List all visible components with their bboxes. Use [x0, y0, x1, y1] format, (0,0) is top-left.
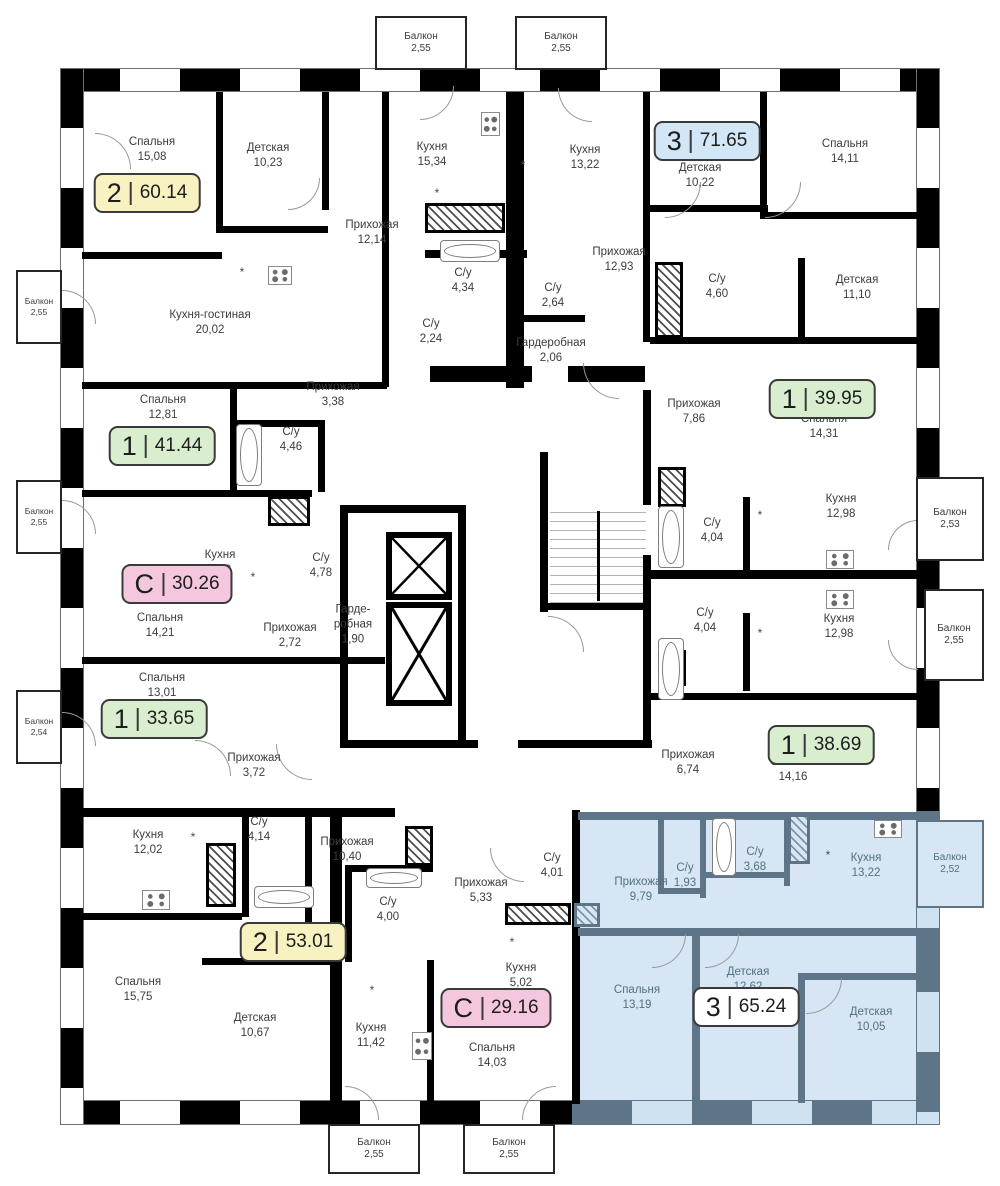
room-name: Кухня: [824, 613, 855, 625]
badge-separator: [276, 931, 278, 954]
room-label: С/у1,93: [674, 861, 696, 891]
balcony-area: 2,55: [499, 1149, 518, 1162]
room-area: 4,34: [452, 281, 474, 296]
wall-segment: [430, 366, 532, 382]
room-area: 4,04: [701, 531, 723, 546]
hatch-shaft: [574, 903, 600, 927]
appliance-asterisk-mark: *: [191, 830, 196, 844]
wall-segment: [743, 613, 750, 691]
room-name: С/у: [746, 846, 763, 858]
room-area: 4,14: [248, 830, 270, 845]
appliance-asterisk-mark: *: [251, 570, 256, 584]
room-name: Спальня: [822, 138, 868, 150]
room-name: Детская: [850, 1006, 893, 1018]
room-label: Спальня14,03: [469, 1041, 515, 1071]
bathtub-icon: [658, 506, 684, 568]
badge-room-count: 2: [107, 178, 122, 209]
badge-separator: [804, 734, 806, 757]
wall-segment: [510, 315, 585, 322]
room-label: С/у4,34: [452, 266, 474, 296]
room-label: Детская11,10: [836, 273, 879, 303]
apartment-badge[interactable]: 133.65: [101, 699, 208, 739]
apartment-badge[interactable]: С30.26: [121, 564, 232, 604]
room-area: 5,33: [454, 891, 507, 906]
balcony-label: Балкон: [492, 1137, 526, 1150]
badge-separator: [162, 573, 164, 596]
door-arc-icon: [195, 740, 231, 776]
room-label: С/у2,64: [542, 281, 564, 311]
badge-separator: [137, 708, 139, 731]
room-name: Спальня: [139, 672, 185, 684]
room-label: Кухня12,02: [133, 828, 164, 858]
stairs: [550, 455, 646, 605]
room-area: 14,11: [822, 152, 868, 167]
room-area: 12,93: [592, 260, 645, 275]
room-area: 10,22: [679, 176, 722, 191]
badge-area: 60.14: [140, 182, 188, 204]
badge-area: 53.01: [286, 931, 334, 953]
room-name: Прихожая: [661, 749, 714, 761]
wall-segment: [318, 420, 325, 492]
wall-segment: [82, 252, 222, 259]
wall-segment: [518, 740, 652, 748]
room-name: Прихожая: [667, 398, 720, 410]
door-arc-icon: [888, 520, 918, 550]
apartment-badge[interactable]: 371.65: [654, 121, 761, 161]
wall-segment: [798, 258, 805, 342]
room-area: 4,60: [706, 287, 728, 302]
hatch-shaft: [655, 262, 683, 338]
room-name: Детская: [247, 142, 290, 154]
door-arc-icon: [345, 1086, 379, 1120]
selected-wall-segment: [578, 928, 940, 936]
room-label: С/у4,60: [706, 272, 728, 302]
badge-separator: [729, 996, 731, 1019]
room-label: Кухня12,98: [826, 492, 857, 522]
balcony: Балкон2,55: [375, 16, 467, 70]
room-area: 11,10: [836, 288, 879, 303]
stove-icon: [874, 820, 902, 838]
room-label: С/у2,24: [420, 317, 442, 347]
stove-icon: [268, 266, 292, 285]
hatch-shaft: [405, 826, 433, 866]
room-name: Прихожая: [345, 219, 398, 231]
badge-area: 41.44: [155, 435, 203, 457]
room-label: Спальня12,81: [140, 393, 186, 423]
appliance-asterisk-mark: *: [521, 158, 526, 172]
balcony-area: 2,55: [364, 1149, 383, 1162]
room-area: 11,42: [356, 1036, 387, 1051]
room-area: 2,72: [263, 636, 316, 651]
room-name: Спальня: [129, 136, 175, 148]
room-label: Кухня15,34: [417, 140, 448, 170]
stove-icon: [412, 1032, 432, 1060]
room-name: Кухня: [417, 141, 448, 153]
stove-icon: [826, 550, 854, 569]
room-label: Детская10,67: [234, 1011, 277, 1041]
room-label: Кухня5,02: [506, 961, 537, 991]
wall-segment: [643, 205, 768, 212]
appliance-asterisk-mark: *: [370, 983, 375, 997]
room-label: Спальня13,01: [139, 671, 185, 701]
room-name: Спальня: [140, 394, 186, 406]
room-area: 13,19: [614, 998, 660, 1013]
balcony: Балкон2,55: [463, 1124, 555, 1174]
balcony: Балкон2,55: [515, 16, 607, 70]
wall-segment: [340, 505, 466, 513]
room-area: 12,98: [824, 627, 855, 642]
balcony: Балкон2,52: [916, 820, 984, 908]
badge-room-count: 1: [782, 384, 797, 415]
room-name: Прихожая: [320, 836, 373, 848]
room-name: С/у: [544, 282, 561, 294]
room-name: Прихожая: [263, 622, 316, 634]
room-label: Спальня14,11: [822, 137, 868, 167]
room-label: С/у4,04: [701, 516, 723, 546]
badge-area: 29.16: [491, 997, 539, 1019]
hatch-shaft: [505, 903, 571, 925]
room-area: 10,67: [234, 1026, 277, 1041]
door-arc-icon: [288, 178, 320, 210]
badge-room-count: С: [453, 993, 473, 1024]
apartment-badge[interactable]: 260.14: [94, 173, 201, 213]
room-name: Спальня: [137, 612, 183, 624]
room-area: 9,79: [614, 890, 667, 905]
badge-area: 30.26: [172, 573, 220, 595]
room-area: 7,86: [667, 412, 720, 427]
room-area: 15,75: [115, 990, 161, 1005]
badge-area: 33.65: [147, 708, 195, 730]
wall-segment: [82, 913, 242, 920]
room-area: 12,14: [345, 233, 398, 248]
balcony-label: Балкон: [25, 296, 54, 307]
door-arc-icon: [420, 86, 454, 120]
wall-segment: [643, 92, 650, 342]
room-area: 2,64: [542, 296, 564, 311]
wall-segment: [458, 510, 466, 747]
badge-separator: [130, 182, 132, 205]
room-area: 4,78: [310, 566, 332, 581]
room-area: 3,72: [227, 766, 280, 781]
apartment-badge[interactable]: С29.16: [440, 988, 551, 1028]
door-arc-icon: [62, 500, 96, 534]
selected-wall-segment: [700, 812, 706, 898]
bathtub-icon: [658, 638, 684, 700]
room-label: С/у3,68: [744, 845, 766, 875]
room-area: 4,01: [541, 866, 563, 881]
balcony-area: 2,55: [944, 635, 963, 648]
exterior-wall-bottom: [60, 1100, 580, 1125]
wall-segment: [643, 390, 651, 505]
badge-separator: [805, 388, 807, 411]
room-name: Гардеробная: [516, 337, 586, 349]
stove-icon: [142, 890, 170, 910]
wall-segment: [764, 212, 920, 219]
wall-segment: [82, 657, 385, 664]
wall-segment: [650, 570, 922, 579]
wall-segment: [540, 452, 548, 612]
wall-segment: [82, 808, 395, 817]
room-area: 1,90: [322, 632, 384, 647]
wall-segment: [216, 226, 328, 233]
room-name: Прихожая: [592, 246, 645, 258]
balcony-label: Балкон: [933, 852, 967, 865]
hatch-shaft: [206, 843, 236, 907]
room-label: Прихожая10,40: [320, 835, 373, 865]
exterior-wall-bottom-selected: [572, 1100, 940, 1125]
balcony-area: 2,55: [411, 43, 430, 56]
room-label: Прихожая3,72: [227, 751, 280, 781]
room-area: 14,16: [770, 770, 816, 785]
room-area: 20,02: [169, 323, 250, 338]
stove-icon: [826, 590, 854, 609]
bathtub-icon: [712, 818, 736, 876]
room-area: 10,40: [320, 850, 373, 865]
room-name: Прихожая: [227, 752, 280, 764]
room-name: Прихожая: [614, 876, 667, 888]
room-label: Кухня13,22: [570, 143, 601, 173]
room-name: Спальня: [115, 976, 161, 988]
room-name: Кухня: [133, 829, 164, 841]
wall-segment: [643, 555, 651, 740]
elevator-x-icon: [392, 538, 446, 594]
balcony: Балкон2,55: [924, 589, 984, 681]
appliance-asterisk-mark: *: [435, 186, 440, 200]
room-name: Кухня: [356, 1022, 387, 1034]
wall-segment: [216, 92, 223, 232]
room-name: Кухня: [851, 852, 882, 864]
room-area: 15,08: [129, 150, 175, 165]
badge-area: 38.69: [814, 734, 862, 756]
room-label: Прихожая12,14: [345, 218, 398, 248]
room-area: 10,23: [247, 156, 290, 171]
room-label: Прихожая5,33: [454, 876, 507, 906]
room-label: С/у4,01: [541, 851, 563, 881]
badge-separator: [481, 997, 483, 1020]
balcony-label: Балкон: [937, 623, 971, 636]
bathtub-icon: [236, 424, 262, 486]
balcony-area: 2,55: [31, 307, 48, 318]
wall-segment: [743, 497, 750, 575]
wall-segment: [650, 693, 922, 700]
balcony-label: Балкон: [25, 716, 54, 727]
balcony-area: 2,55: [551, 43, 570, 56]
badge-area: 39.95: [815, 388, 863, 410]
door-arc-icon: [95, 133, 131, 169]
room-name: С/у: [454, 267, 471, 279]
badge-room-count: С: [134, 569, 154, 600]
room-label: Прихожая9,79: [614, 875, 667, 905]
appliance-asterisk-mark: *: [758, 508, 763, 522]
room-label: С/у4,78: [310, 551, 332, 581]
elevator-x-icon: [392, 608, 446, 700]
stair-rail: [597, 511, 600, 601]
room-name: Кухня: [826, 493, 857, 505]
balcony-label: Балкон: [404, 31, 438, 44]
room-area: 14,03: [469, 1056, 515, 1071]
balcony: Балкон2,53: [916, 477, 984, 561]
hatch-shaft: [268, 496, 310, 526]
room-label: Прихожая12,93: [592, 245, 645, 275]
room-area: 12,02: [133, 843, 164, 858]
room-area: 2,24: [420, 332, 442, 347]
room-name: Гарде- робная: [334, 604, 372, 631]
room-label: С/у4,14: [248, 815, 270, 845]
room-name: С/у: [379, 896, 396, 908]
badge-room-count: 1: [114, 704, 129, 735]
balcony: Балкон2,55: [16, 270, 62, 344]
room-label: Детская10,22: [679, 161, 722, 191]
balcony-label: Балкон: [544, 31, 578, 44]
badge-room-count: 3: [706, 992, 721, 1023]
room-name: Детская: [727, 966, 770, 978]
door-arc-icon: [62, 712, 96, 746]
balcony-label: Балкон: [25, 506, 54, 517]
room-label: Прихожая6,74: [661, 748, 714, 778]
exterior-wall-top: [60, 68, 940, 92]
room-area: 4,46: [280, 440, 302, 455]
room-area: 1,93: [674, 876, 696, 891]
room-label: С/у4,04: [694, 606, 716, 636]
room-label: Спальня15,08: [129, 135, 175, 165]
door-arc-icon: [558, 88, 592, 122]
exterior-wall-right: [916, 68, 940, 812]
balcony: Балкон2,54: [16, 690, 62, 764]
room-label: Гарде- робная1,90: [322, 603, 384, 648]
room-area: 4,04: [694, 621, 716, 636]
room-name: С/у: [422, 318, 439, 330]
room-label: Кухня11,42: [356, 1021, 387, 1051]
balcony-area: 2,52: [940, 864, 959, 877]
apartment-badge[interactable]: 365.24: [693, 987, 800, 1027]
appliance-asterisk-mark: *: [510, 935, 515, 949]
room-name: Детская: [836, 274, 879, 286]
room-area: 13,22: [851, 866, 882, 881]
room-label: Спальня14,21: [137, 611, 183, 641]
badge-room-count: 1: [122, 431, 137, 462]
apartment-badge[interactable]: 139.95: [769, 379, 876, 419]
room-name: С/у: [703, 517, 720, 529]
appliance-asterisk-mark: *: [240, 265, 245, 279]
room-area: 14,31: [801, 427, 847, 442]
apartment-badge[interactable]: 141.44: [109, 426, 216, 466]
bathtub-icon: [366, 868, 422, 888]
floor-plan: Спальня15,08Детская10,23Кухня15,34Кухня1…: [0, 0, 1000, 1186]
room-label: Детская10,23: [247, 141, 290, 171]
badge-area: 65.24: [739, 996, 787, 1018]
room-area: 14,21: [137, 626, 183, 641]
room-area: 6,74: [661, 763, 714, 778]
door-arc-icon: [888, 640, 918, 670]
room-name: Детская: [679, 162, 722, 174]
balcony-label: Балкон: [933, 507, 967, 520]
badge-room-count: 1: [781, 730, 796, 761]
wall-segment: [340, 740, 478, 748]
room-name: С/у: [250, 816, 267, 828]
room-label: Прихожая3,38: [306, 380, 359, 410]
wall-segment: [572, 810, 580, 1104]
selected-wall-segment: [578, 812, 940, 820]
room-area: 12,81: [140, 408, 186, 423]
balcony-area: 2,54: [31, 727, 48, 738]
badge-room-count: 3: [667, 126, 682, 157]
room-name: Кухня: [205, 549, 236, 561]
room-area: 10,05: [850, 1020, 893, 1035]
room-area: 3,68: [744, 860, 766, 875]
appliance-asterisk-mark: *: [758, 626, 763, 640]
hatch-shaft: [425, 203, 505, 233]
room-name: С/у: [708, 273, 725, 285]
room-name: Кухня: [506, 962, 537, 974]
room-name: С/у: [676, 862, 693, 874]
elevator-shaft: [386, 602, 452, 706]
elevator-shaft: [386, 532, 452, 600]
room-name: Спальня: [469, 1042, 515, 1054]
room-area: 4,00: [377, 910, 399, 925]
hatch-shaft: [788, 814, 810, 864]
door-arc-icon: [583, 363, 619, 399]
room-name: Детская: [234, 1012, 277, 1024]
room-label: Кухня13,22: [851, 851, 882, 881]
room-label: С/у4,00: [377, 895, 399, 925]
room-label: С/у4,46: [280, 425, 302, 455]
room-label: Кухня12,98: [824, 612, 855, 642]
bathtub-icon: [254, 886, 314, 908]
room-area: 15,34: [417, 155, 448, 170]
badge-room-count: 2: [253, 927, 268, 958]
apartment-badge[interactable]: 253.01: [240, 922, 347, 962]
appliance-asterisk-mark: *: [826, 848, 831, 862]
door-arc-icon: [548, 616, 584, 652]
room-area: 3,38: [306, 395, 359, 410]
room-name: С/у: [543, 852, 560, 864]
hatch-shaft: [658, 467, 686, 507]
room-name: Кухня: [570, 144, 601, 156]
room-label: Спальня13,19: [614, 983, 660, 1013]
room-label: Гардеробная2,06: [516, 336, 586, 366]
exterior-wall-left: [60, 68, 84, 1125]
room-label: Прихожая7,86: [667, 397, 720, 427]
badge-separator: [145, 435, 147, 458]
balcony-area: 2,53: [940, 519, 959, 532]
room-name: Спальня: [614, 984, 660, 996]
room-name: С/у: [312, 552, 329, 564]
balcony-area: 2,55: [31, 517, 48, 528]
balcony: Балкон2,55: [16, 480, 62, 554]
room-label: Спальня15,75: [115, 975, 161, 1005]
door-arc-icon: [522, 1086, 556, 1120]
room-area: 2,06: [516, 351, 586, 366]
room-name: Прихожая: [306, 381, 359, 393]
bathtub-icon: [440, 240, 500, 262]
room-label: Кухня-гостиная20,02: [169, 308, 250, 338]
wall-segment: [322, 92, 329, 210]
stove-icon: [481, 112, 500, 136]
room-label: Прихожая2,72: [263, 621, 316, 651]
room-label: Детская10,05: [850, 1005, 893, 1035]
wall-segment: [545, 603, 651, 610]
room-name: С/у: [696, 607, 713, 619]
wall-segment: [650, 337, 922, 344]
apartment-badge[interactable]: 138.69: [768, 725, 875, 765]
door-arc-icon: [62, 290, 96, 324]
room-name: С/у: [282, 426, 299, 438]
badge-area: 71.65: [700, 130, 748, 152]
balcony: Балкон2,55: [328, 1124, 420, 1174]
badge-separator: [690, 130, 692, 153]
door-arc-icon: [276, 744, 312, 780]
room-area: 12,98: [826, 507, 857, 522]
